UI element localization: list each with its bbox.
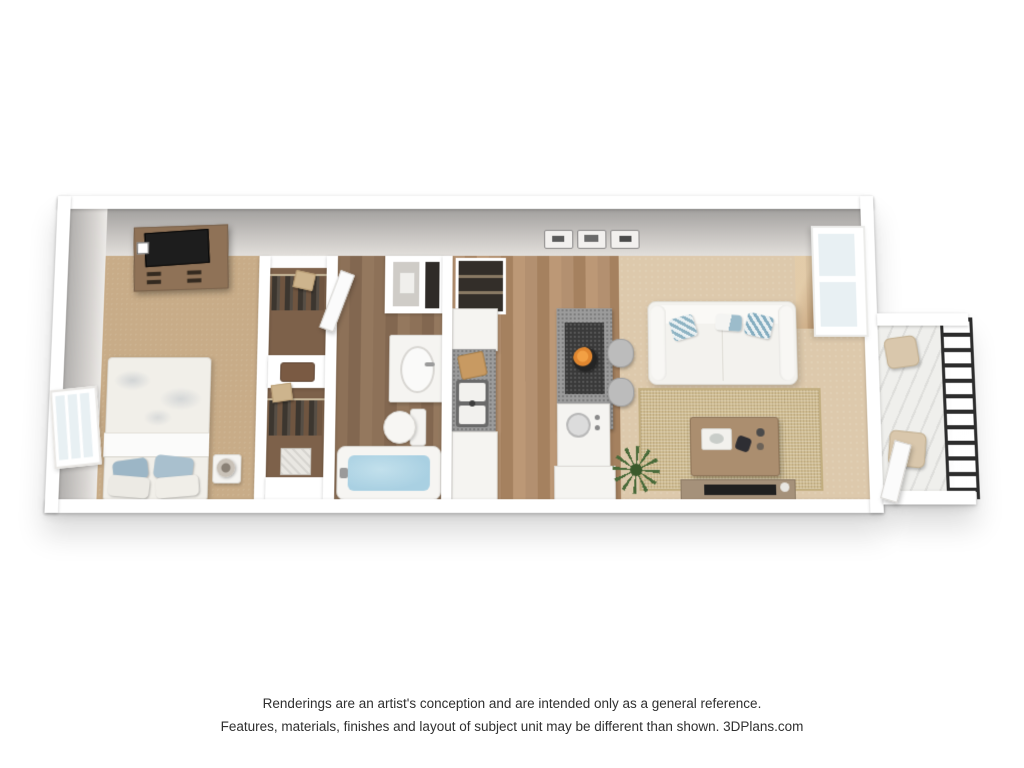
door-glass-pane bbox=[819, 282, 857, 327]
kitchen-cabinet-lower-left bbox=[451, 431, 497, 501]
electrical-panel bbox=[577, 230, 606, 249]
burner bbox=[566, 413, 591, 438]
bed bbox=[103, 357, 212, 501]
fruit-bowl bbox=[573, 347, 598, 372]
hanging-clothes bbox=[269, 400, 323, 435]
tub-faucet bbox=[340, 468, 348, 478]
disclaimer-line-2: Features, materials, finishes and layout… bbox=[0, 715, 1024, 738]
console-decor bbox=[780, 482, 789, 491]
closet-divider-shelf bbox=[268, 355, 326, 388]
electrical-panel bbox=[544, 230, 573, 249]
sink-faucet bbox=[425, 362, 435, 366]
door-glass-pane bbox=[818, 234, 855, 276]
disclaimer: Renderings are an artist's conception an… bbox=[0, 692, 1024, 738]
decor-object bbox=[757, 443, 764, 450]
decor-object bbox=[756, 428, 764, 436]
sink-basin bbox=[459, 383, 486, 402]
luggage-bench bbox=[280, 362, 315, 381]
sofa bbox=[647, 301, 798, 385]
bathtub bbox=[336, 446, 441, 500]
tray-dish bbox=[709, 433, 724, 443]
sofa-cushion-seam bbox=[722, 325, 724, 381]
bathroom-vanity bbox=[389, 335, 444, 403]
panel-detail bbox=[619, 236, 631, 242]
balcony-top-ledge bbox=[877, 313, 969, 325]
control-knob bbox=[595, 415, 600, 420]
tv-console bbox=[680, 479, 796, 501]
dresser-drawer-handle bbox=[147, 272, 161, 277]
refrigerator bbox=[452, 308, 498, 351]
toilet bbox=[383, 407, 426, 446]
window-pane bbox=[80, 393, 93, 458]
sink-basin bbox=[459, 406, 486, 425]
storage-box bbox=[271, 383, 293, 403]
panel-detail bbox=[584, 235, 598, 242]
wall-bathroom-kitchen bbox=[441, 256, 453, 499]
throw-pillow-print bbox=[715, 314, 742, 332]
picture-frame bbox=[137, 242, 149, 254]
electrical-panel bbox=[610, 230, 639, 249]
potted-plant bbox=[612, 446, 660, 494]
double-sink bbox=[456, 380, 489, 427]
pillow-white bbox=[155, 474, 199, 499]
page: Renderings are an artist's conception an… bbox=[0, 0, 1024, 768]
panel-detail bbox=[552, 236, 564, 242]
coffee-table bbox=[690, 417, 780, 476]
balcony-railing bbox=[940, 317, 980, 499]
pantry-shelves bbox=[455, 258, 506, 315]
bar-stool bbox=[608, 378, 635, 407]
decor-vase bbox=[734, 435, 752, 454]
stored-box bbox=[399, 272, 415, 294]
disclaimer-line-1: Renderings are an artist's conception an… bbox=[0, 692, 1024, 715]
kitchen-cabinet-lower-right bbox=[554, 466, 616, 502]
hamper bbox=[280, 448, 311, 475]
range-stove bbox=[557, 403, 611, 467]
top-exterior-wall bbox=[57, 196, 873, 209]
folded-sheet bbox=[103, 432, 209, 457]
toilet-bowl bbox=[383, 411, 416, 444]
pillow-white bbox=[107, 474, 150, 499]
television bbox=[704, 485, 776, 495]
vanity-sink-basin bbox=[400, 346, 435, 393]
dresser-with-tv bbox=[134, 224, 229, 292]
utility-closet-interior bbox=[425, 262, 439, 308]
tv-screen bbox=[144, 229, 210, 267]
decor-tray bbox=[701, 428, 732, 450]
patio-chair bbox=[883, 335, 920, 370]
duvet-floral-pattern bbox=[106, 358, 210, 432]
bathtub-water bbox=[348, 455, 430, 491]
plant-center bbox=[630, 464, 642, 477]
control-knob bbox=[595, 425, 600, 430]
bottom-exterior-wall bbox=[44, 499, 883, 513]
floor-plan-rendering bbox=[44, 196, 976, 515]
bar-stool bbox=[607, 339, 634, 368]
dresser-drawer-handle bbox=[187, 270, 201, 275]
closet-bottom-cap-wall bbox=[265, 477, 323, 499]
sliding-glass-door bbox=[811, 226, 869, 337]
dresser-drawer-handle bbox=[147, 280, 161, 285]
bedroom-window bbox=[50, 386, 102, 469]
kitchen-counter-left bbox=[452, 349, 496, 431]
linen-closet-interior bbox=[393, 262, 420, 306]
sink-faucet bbox=[469, 400, 475, 406]
cutting-board bbox=[457, 351, 488, 381]
sofa-armrest bbox=[650, 305, 666, 381]
window-pane bbox=[68, 394, 81, 459]
sofa-armrest bbox=[778, 305, 795, 381]
dresser-drawer-handle bbox=[187, 278, 201, 283]
window-pane bbox=[55, 395, 68, 460]
